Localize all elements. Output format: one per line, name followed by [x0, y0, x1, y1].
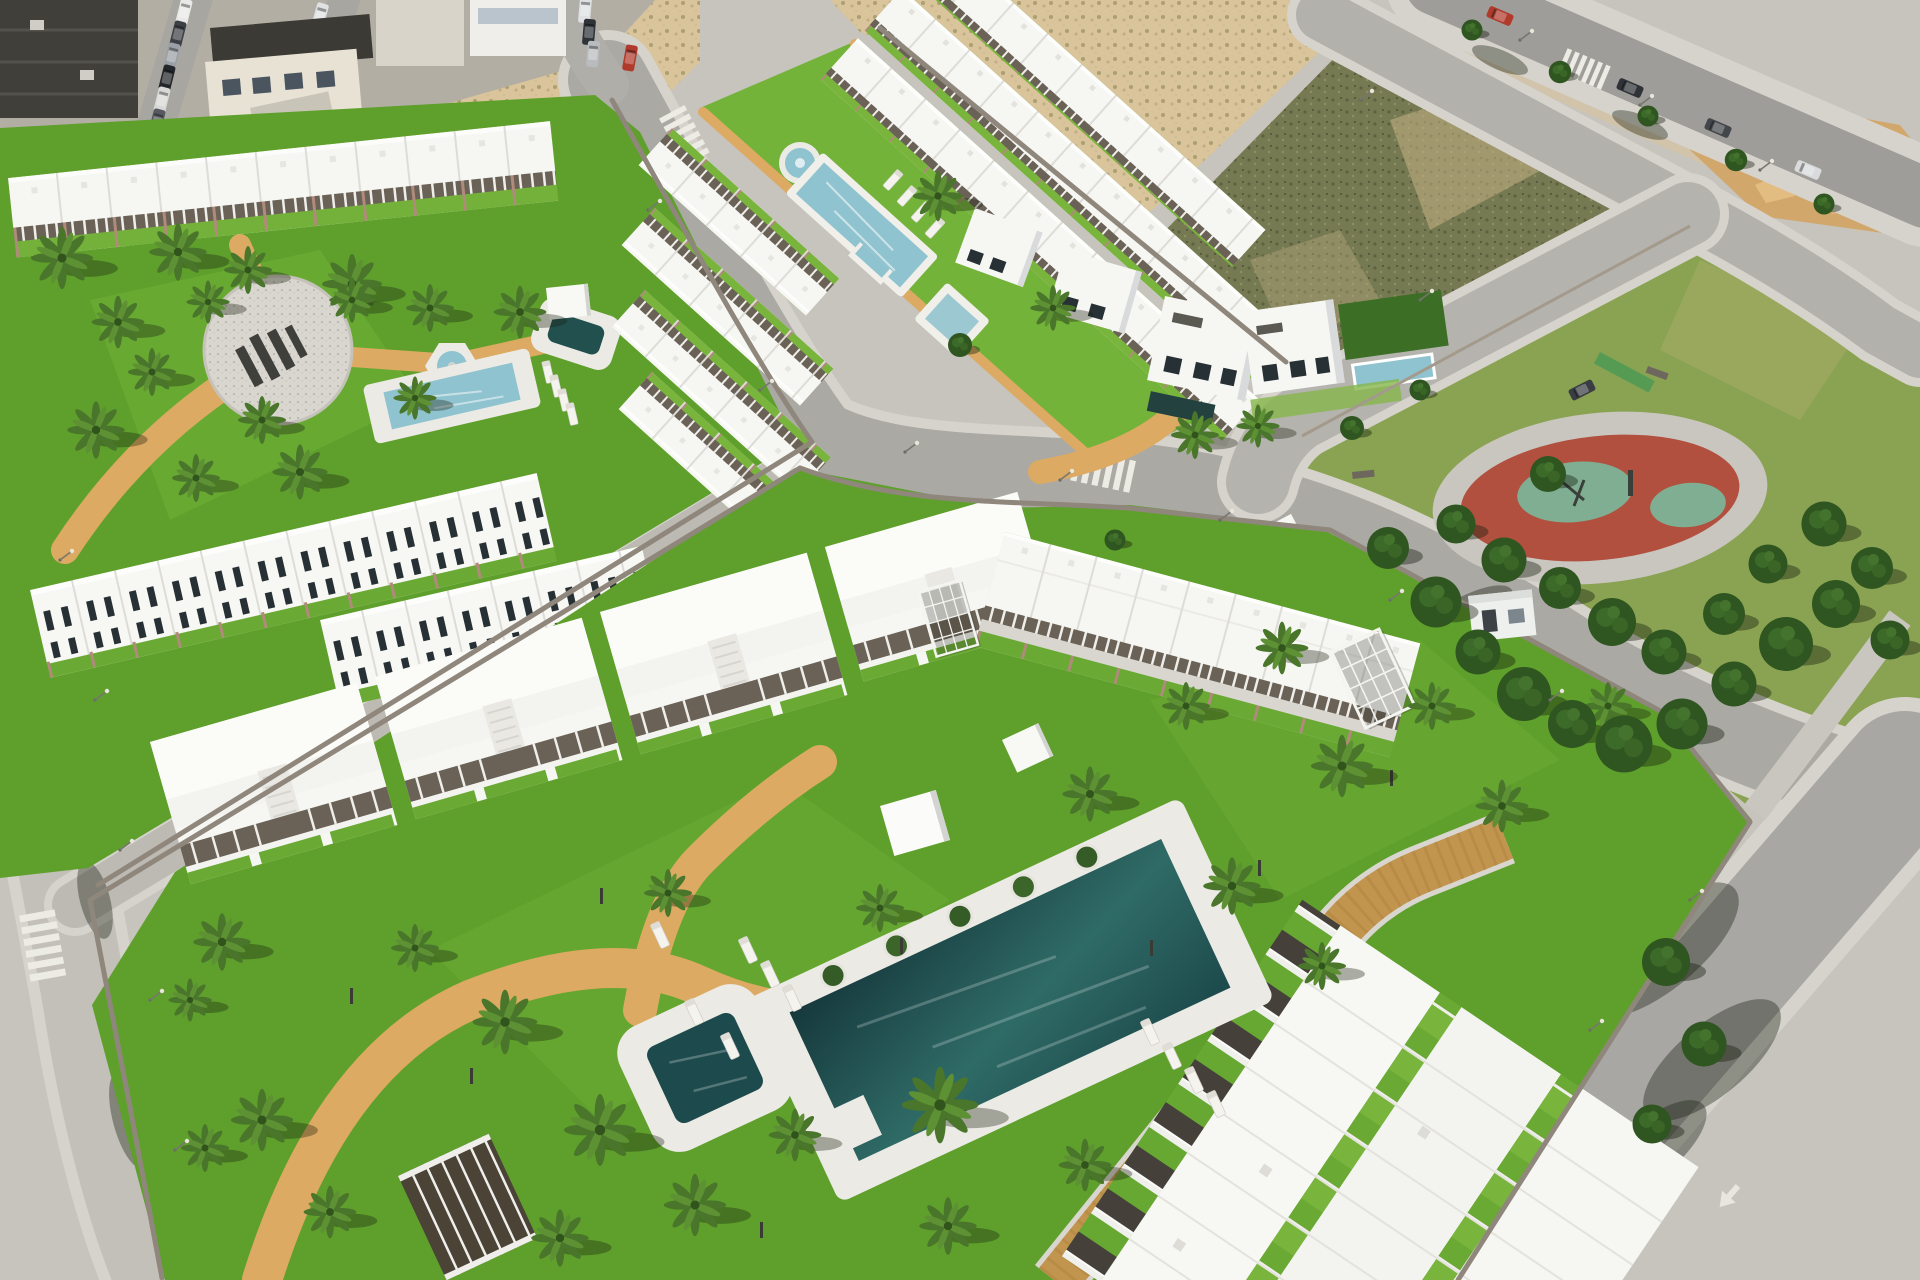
roof-unit — [30, 20, 44, 30]
aerial-screenshot — [0, 0, 1920, 1280]
town-building — [376, 0, 464, 66]
car — [586, 41, 600, 68]
blue-gray-roof — [478, 8, 558, 24]
pool-shed — [546, 284, 591, 320]
roof-unit — [80, 70, 94, 80]
aerial-render-canvas — [0, 0, 1920, 1280]
town-dark-roof — [0, 0, 138, 118]
play-equipment — [1628, 470, 1633, 496]
